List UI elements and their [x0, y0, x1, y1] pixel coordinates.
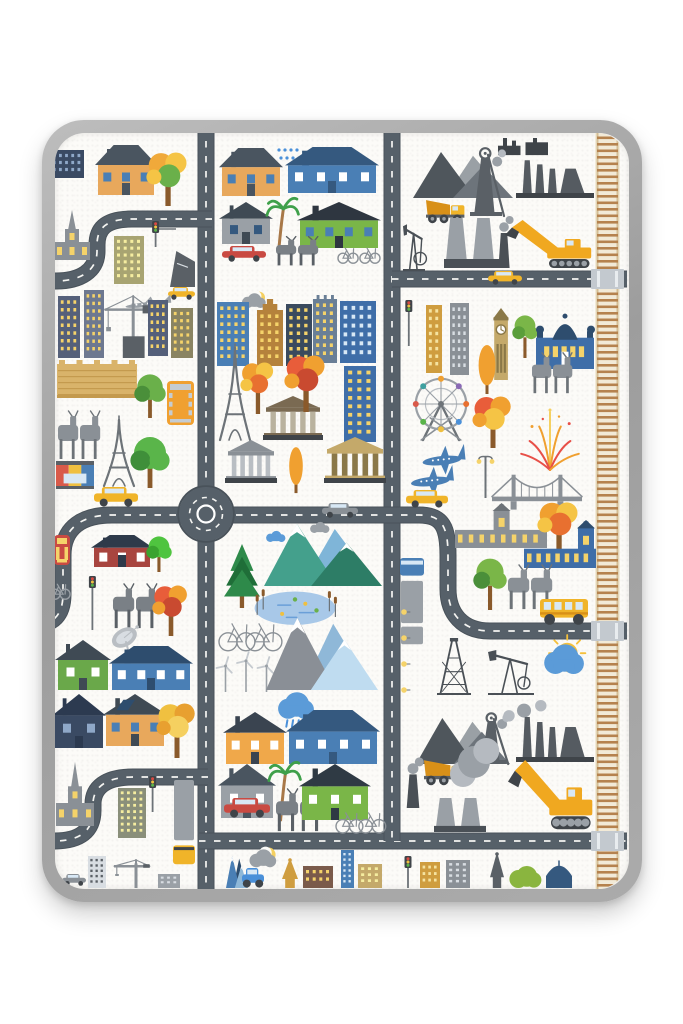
tower-blue-lit: [217, 302, 249, 366]
tree-autumn-2: [240, 363, 273, 415]
building-dark-slant: [170, 251, 195, 287]
house-blue-3: [109, 646, 193, 690]
map-area: [0, 0, 683, 1024]
traffic-signal-4: [149, 776, 156, 812]
tree-yellow-1: [157, 704, 195, 759]
house-green-2: [299, 764, 371, 820]
lattice-tower: [104, 416, 134, 486]
fireworks: [521, 409, 579, 471]
product-photo: [0, 0, 683, 1024]
tree-cypress-orange: [289, 447, 303, 493]
tower-gray-1: [450, 303, 469, 375]
house-tan-2: [219, 148, 283, 196]
house-green-3: [55, 640, 111, 690]
city-map-illustration: [0, 0, 683, 1024]
oil-pumpjack: [488, 650, 534, 694]
big-ben: [493, 308, 508, 380]
railroad-crossing-3: [591, 831, 624, 851]
car-red-1: [222, 246, 266, 262]
tree-autumn-1: [146, 153, 186, 207]
truck-trailer-blue: [400, 558, 424, 644]
traffic-signal-2: [405, 300, 412, 346]
taxi-1: [168, 287, 195, 300]
bikes-1: [338, 248, 380, 263]
building-stripe-blue: [344, 366, 376, 442]
dome-blue-mini: [546, 861, 572, 888]
railroad-crossing-2: [591, 621, 624, 641]
house-blue-1: [285, 147, 379, 193]
truck-front-blue: [242, 868, 264, 888]
bank-tan: [324, 437, 386, 483]
railroad-crossing-1: [591, 269, 624, 289]
tree-orange-tall: [479, 345, 496, 394]
mini-building-2: [303, 866, 333, 888]
sun-cloud: [544, 635, 585, 674]
cooling-towers-2: [434, 798, 486, 832]
tree-green-2: [130, 437, 169, 488]
apartment-khaki: [114, 236, 144, 284]
truck-vertical: [173, 780, 195, 864]
taxi-3: [406, 490, 448, 508]
pine-tree: [224, 544, 260, 608]
temple-tan: [263, 396, 323, 440]
oil-derrick: [437, 638, 471, 694]
wind-turbines: [217, 652, 273, 692]
mini-building-3: [358, 864, 382, 888]
house-tan-1: [95, 145, 157, 195]
school-bus: [540, 599, 588, 625]
crane-skyline: [114, 860, 150, 888]
factory-stacks-2: [516, 717, 594, 762]
tree-green-4: [473, 559, 506, 610]
kiosk-colorful: [56, 461, 94, 489]
tree-green-3: [512, 315, 537, 358]
mini-tower-1: [88, 856, 106, 888]
mini-tower-blue: [341, 850, 354, 888]
mountains-blue: [266, 618, 378, 690]
building-gold-tall: [426, 305, 442, 373]
cloud-blue: [266, 531, 285, 542]
tower-lit-4: [171, 308, 193, 358]
roundabout: [178, 486, 234, 542]
monument-fountain: [58, 411, 100, 459]
cooling-towers-1: [444, 218, 500, 268]
moon-cloud-2: [250, 847, 277, 868]
tree-green-5: [146, 536, 171, 572]
bus-orange: [167, 381, 194, 425]
mini-building-5: [446, 860, 470, 888]
spire-silhouette: [490, 852, 504, 888]
street-lamp: [477, 456, 495, 498]
railroad-track: [595, 126, 620, 893]
tree-green-1: [134, 374, 165, 418]
house-green-1: [297, 202, 381, 248]
crawler-crane: [505, 220, 591, 268]
bush-green: [509, 866, 541, 888]
house-navy: [52, 694, 106, 748]
pumpjack-small: [403, 224, 426, 270]
tower-lit-3: [148, 300, 168, 356]
brick-building: [57, 360, 137, 398]
mini-building-4: [420, 862, 440, 888]
taxi-2: [94, 487, 138, 507]
tree-autumn-6: [152, 586, 187, 637]
bikes-2: [219, 624, 282, 651]
cloud-gray: [310, 522, 329, 533]
traffic-signal-3: [89, 576, 96, 630]
tree-autumn-4: [473, 397, 511, 449]
tower-crown: [313, 295, 337, 363]
building-blue-grid: [340, 301, 376, 363]
ferris-wheel: [413, 376, 469, 440]
tower-lit-1: [58, 296, 80, 358]
statue-moose-1: [276, 237, 318, 266]
mini-building-1: [158, 874, 180, 888]
mountains-green: [264, 524, 382, 586]
apartment-pixel: [118, 788, 146, 838]
construction-crane: [105, 296, 152, 358]
traffic-signal-5: [405, 856, 412, 888]
pagoda-gold: [282, 858, 298, 888]
excavator-yellow: [508, 760, 592, 829]
factory-stacks-1: [516, 160, 594, 198]
house-red: [91, 535, 153, 567]
statue-moose-3: [113, 584, 157, 628]
bank-gray: [225, 440, 277, 483]
tower-gold: [257, 299, 283, 366]
chimney-dark-2: [407, 757, 424, 808]
house-orange-2: [223, 712, 287, 764]
shed-gray: [219, 202, 273, 244]
house-orange-3: [103, 694, 167, 746]
palace-gray: [455, 503, 547, 548]
chimney-dark-1: [498, 216, 513, 268]
jets-blue: [410, 444, 467, 498]
pond: [255, 589, 337, 625]
tower-lit-2: [84, 290, 104, 358]
church-left: [54, 210, 90, 260]
fire-truck: [54, 535, 70, 565]
house-blue-2: [286, 710, 380, 764]
